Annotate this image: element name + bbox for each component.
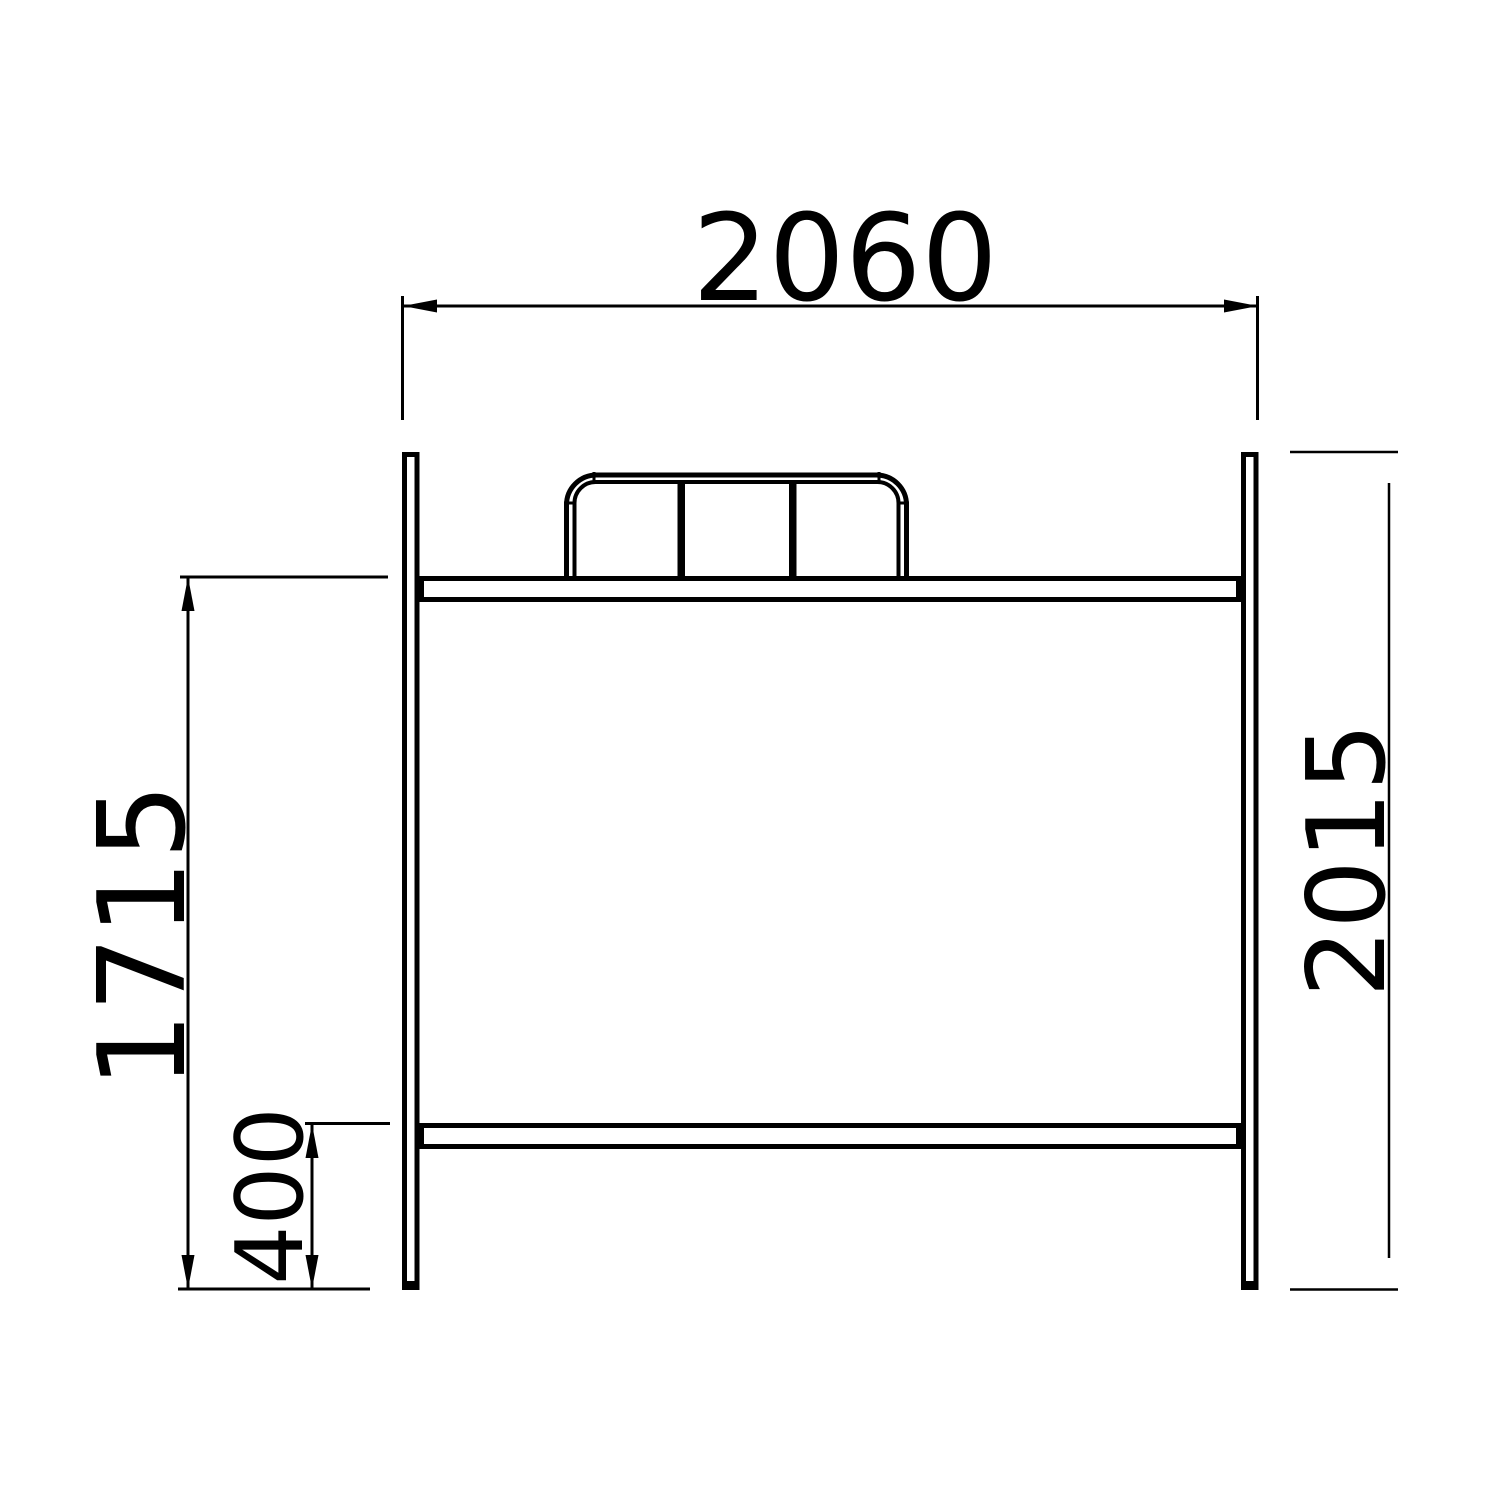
dim-1715-label: 1715 bbox=[74, 783, 213, 1088]
guard-rail bbox=[564, 472, 909, 576]
dimension-overall-height: 2015 bbox=[1285, 452, 1410, 1290]
frame-model bbox=[402, 455, 1258, 1288]
guard-rail-divider-2 bbox=[791, 482, 795, 576]
technical-drawing: 2060 1715 400 2015 bbox=[0, 0, 1500, 1500]
top-rail bbox=[422, 579, 1239, 600]
dim-2015-label: 2015 bbox=[1285, 723, 1410, 998]
guard-rail-divider-1 bbox=[680, 482, 684, 576]
dim-2060-label: 2060 bbox=[692, 190, 997, 329]
guard-rail-inner-tube bbox=[575, 482, 899, 576]
right-post bbox=[1244, 455, 1257, 1288]
dim-1715-arrow-bottom bbox=[182, 1255, 195, 1289]
dimension-lower-rail-height: 400 bbox=[216, 1107, 390, 1289]
dimension-overall-width: 2060 bbox=[403, 190, 1259, 420]
dim-1715-arrow-top bbox=[182, 577, 195, 611]
dim-400-label: 400 bbox=[216, 1107, 324, 1285]
guard-rail-outer-tube bbox=[567, 475, 907, 576]
bottom-rail bbox=[422, 1126, 1239, 1147]
drawing-canvas: 2060 1715 400 2015 bbox=[0, 0, 1500, 1500]
dim-2060-arrow-left bbox=[403, 300, 437, 313]
dim-2060-arrow-right bbox=[1224, 300, 1258, 313]
left-post bbox=[405, 455, 418, 1288]
